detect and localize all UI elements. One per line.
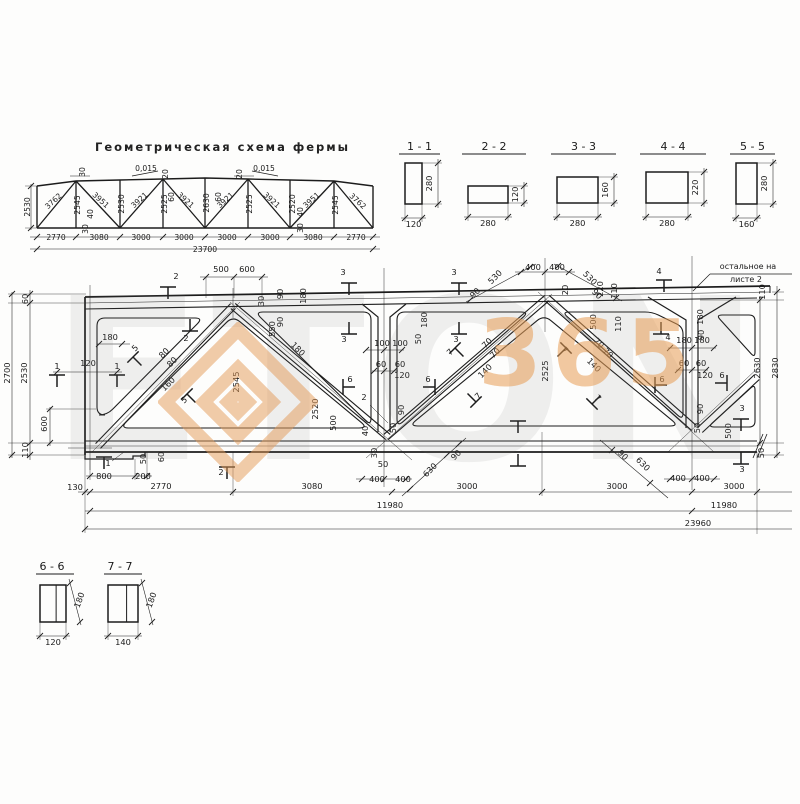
dim-label: 3080 (303, 233, 322, 242)
blueprint-sheet: ETON 365 Геометрическая схема фермы 2770… (0, 0, 800, 800)
dim-label: 280 (659, 218, 675, 228)
dim-label: 2700 (2, 362, 12, 383)
dim-label: 220 (690, 180, 700, 196)
watermark-diamond-logo (158, 322, 318, 482)
dim-label: 60 (20, 294, 30, 305)
dim-label: 140 (115, 637, 131, 647)
dim-label: 3000 (131, 233, 150, 242)
dim-label: 160 (600, 182, 610, 198)
dim-label: 3000 (217, 233, 236, 242)
dim-label: 2 - 2 (482, 140, 507, 153)
dim-label: 3921 (175, 190, 196, 210)
dim-label: 6 - 6 (40, 560, 65, 573)
dim-label: 3951 (301, 190, 322, 210)
dim-label: 3000 (174, 233, 193, 242)
dim-label: 0,015 (135, 164, 157, 173)
dim-label: 180 (144, 591, 159, 609)
dim-label: 280 (424, 176, 434, 192)
dim-label: 3080 (89, 233, 108, 242)
dim-label: 160 (739, 219, 755, 229)
dim-label: 110 (20, 442, 30, 458)
dim-label: 60 (214, 192, 223, 202)
dim-label: 280 (759, 176, 769, 192)
dim-label: 0,015 (253, 164, 275, 173)
dim-label: 1 - 1 (407, 140, 432, 153)
dim-label: 2830 (770, 357, 780, 378)
dim-label: 120 (510, 187, 520, 203)
dim-label: 20 (235, 169, 244, 179)
dim-label: 3921 (129, 190, 150, 210)
dim-label: 280 (570, 218, 586, 228)
dim-label: 2530 (117, 194, 126, 213)
dim-label: 5 - 5 (740, 140, 765, 153)
dim-label: 40 (296, 207, 305, 217)
dim-label: 2770 (46, 233, 65, 242)
dim-label: 2630 (202, 193, 211, 212)
scheme-title: Геометрическая схема фермы (95, 140, 350, 154)
dim-label: 60 (167, 192, 176, 202)
dim-label: 120 (406, 219, 422, 229)
dim-label: 40 (86, 209, 95, 219)
dim-label: 23960 (685, 518, 711, 528)
dim-label: 3000 (260, 233, 279, 242)
dim-label: 20 (161, 169, 170, 179)
dim-label: 280 (480, 218, 496, 228)
dim-label: 30 (81, 224, 90, 234)
dim-label: 2545 (73, 195, 82, 214)
dim-label: 120 (45, 637, 61, 647)
dim-label: 30 (296, 223, 305, 233)
dim-label: 7 - 7 (108, 560, 133, 573)
dim-label: 2530 (23, 197, 32, 216)
dim-label: 4 - 4 (661, 140, 686, 153)
dim-label: 2770 (346, 233, 365, 242)
dim-label: 2525 (245, 194, 254, 213)
dim-label: 600 (39, 416, 49, 432)
dim-label: 3 - 3 (571, 140, 596, 153)
dim-label: 30 (78, 167, 87, 177)
dim-label: 180 (72, 591, 87, 609)
watermark-365-text: 365 (478, 308, 700, 400)
dim-label: 2530 (19, 362, 29, 383)
dim-label: 2545 (331, 195, 340, 214)
